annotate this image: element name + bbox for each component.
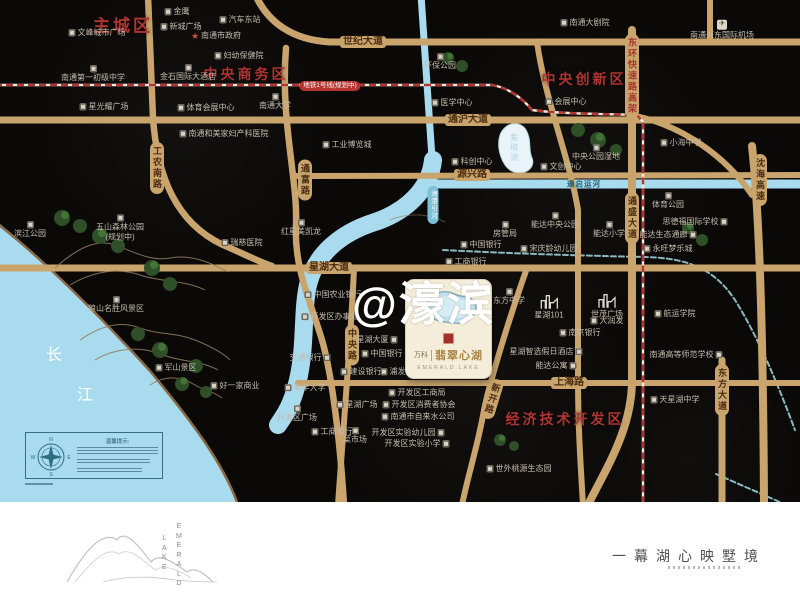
road-label: 星湖大道: [306, 262, 352, 274]
poi-label: 开发区实验小学: [385, 439, 450, 449]
compass-n: N: [49, 437, 53, 443]
disclaimer-paragraph: [77, 468, 142, 474]
poi-text: 体育会展中心: [187, 103, 235, 113]
district-label: 中央创新区: [542, 69, 627, 89]
poi-text: 航运学院: [664, 309, 696, 319]
real-estate-location-map-poster: 主城区中央商务区中央创新区经济技术开发区世纪大道通沪大道源兴路星湖大道上海路工农…: [0, 0, 800, 600]
watermark-text: @濠滨: [352, 268, 495, 334]
poi-label: 狼山名胜风景区: [88, 296, 144, 314]
poi-text: 天星湖中学: [660, 395, 700, 405]
road-label: 世纪大道: [340, 36, 386, 48]
poi-label: 文峰城市广场: [69, 28, 126, 38]
map-area: 主城区中央商务区中央创新区经济技术开发区世纪大道通沪大道源兴路星湖大道上海路工农…: [0, 0, 800, 502]
box-icon: [352, 427, 359, 434]
poi-text: 南通和美家妇产科医院: [189, 129, 269, 139]
poi-text: 南京银行: [569, 328, 601, 338]
footer-tagline: 一幕湖心映墅境: [612, 546, 766, 566]
road-label: 通富路: [298, 160, 312, 201]
poi-text: 体育公园: [652, 200, 684, 210]
box-icon: [294, 405, 301, 412]
poi-text: 南通市自来水公司: [391, 412, 455, 422]
poi-text: 能达生态通廊: [640, 230, 688, 240]
poi-label: 中央公园湿地: [572, 144, 620, 162]
box-icon: [220, 17, 227, 24]
project-name-cn: 翡翠心湖: [435, 347, 483, 363]
poi-label: 五山森林公园 (规划中): [96, 214, 144, 241]
compass-s: S: [49, 472, 53, 477]
poi-label: 星湖大厦: [357, 335, 398, 345]
brand-cn: 万科: [414, 350, 428, 360]
poi-label: 环保公园: [424, 53, 456, 71]
poi-text: 医学中心: [441, 98, 473, 108]
box-icon: [443, 441, 450, 448]
box-icon: [661, 140, 668, 147]
box-icon: [381, 369, 388, 376]
box-icon: [591, 318, 598, 325]
compass-w: W: [31, 455, 36, 461]
road-label: 东环快速路高架: [625, 34, 639, 119]
poi-label: 能达中央公园: [531, 212, 579, 230]
poi-text: 南通大学: [259, 101, 291, 111]
poi-label: 工商银行: [312, 427, 353, 437]
road-label: 紫琅湖: [509, 133, 520, 163]
poi-label: 房管局: [493, 221, 517, 239]
poi-text: 金鹰: [174, 7, 190, 17]
box-icon: [452, 159, 459, 166]
brand-lockup: 万科 翡翠心湖: [414, 347, 483, 363]
poi-text: 瑞慈医院: [231, 238, 263, 248]
poi-label: 小海中学: [661, 138, 702, 148]
poi-label: 南通市自来水公司: [382, 412, 455, 422]
road-label: 海港引河: [428, 186, 439, 224]
poi-text: 老年大学: [294, 383, 326, 393]
box-icon: [323, 142, 330, 149]
poi-text: 星湖101: [534, 311, 563, 321]
road-label: 新开路: [479, 377, 504, 420]
disclaimer-title: 温馨提示:: [77, 437, 158, 445]
box-icon: [341, 369, 348, 376]
poi-text: 小海中学: [670, 138, 702, 148]
poi-label: 工商银行: [446, 257, 487, 267]
box-icon: [437, 53, 444, 60]
box-icon: [80, 104, 87, 111]
footer: EMERALD LAKE 一幕湖心映墅境: [0, 502, 800, 600]
poi-label: ★南通市政府: [191, 31, 241, 41]
box-icon: [305, 292, 312, 299]
box-icon: [185, 64, 192, 71]
poi-text: 开发区消费者协会: [392, 400, 456, 410]
poi-text: 南通大剧院: [570, 18, 610, 28]
poi-text: 开发区实验幼儿园: [372, 428, 436, 438]
poi-label: 星湖101: [534, 294, 563, 321]
district-label: 经济技术开发区: [506, 409, 625, 429]
brand-divider: [431, 350, 432, 361]
poi-text: 科创中心: [461, 157, 493, 167]
poi-text: 思德福国际学校: [663, 217, 719, 227]
box-icon: [389, 390, 396, 397]
disclaimer-paragraph: [77, 459, 150, 465]
box-icon: [721, 219, 728, 226]
box-icon: [432, 100, 439, 107]
poi-text: 红星美凯龙: [281, 227, 321, 237]
box-icon: [90, 65, 97, 72]
box-icon: [606, 221, 613, 228]
box-icon: [502, 221, 509, 228]
box-icon: [561, 20, 568, 27]
poi-label: 天星湖中学: [651, 395, 700, 405]
poi-label: 能达公寓: [536, 361, 577, 371]
poi-text: 交通银行: [290, 353, 322, 363]
box-icon: [362, 351, 369, 358]
footer-small-print: [668, 566, 740, 569]
box-icon: [570, 363, 577, 370]
poi-label: 汽车东站: [220, 15, 261, 25]
star-icon: ★: [191, 32, 199, 40]
box-icon: [438, 430, 445, 437]
box-icon: [302, 314, 309, 321]
box-icon: [521, 246, 528, 253]
box-icon: [665, 192, 672, 199]
box-icon: [298, 219, 305, 226]
road-label: 通启运河: [567, 179, 601, 190]
box-icon: [461, 242, 468, 249]
box-icon: [560, 330, 567, 337]
poi-label: 开发区办事处: [302, 312, 359, 322]
poi-text: 工商银行: [321, 427, 353, 437]
box-icon: [161, 24, 168, 31]
poi-text: 金石国际大酒店: [160, 72, 216, 82]
poi-label: 东方中学: [493, 288, 525, 306]
box-icon: [655, 311, 662, 318]
poi-text: 能达中央公园: [531, 220, 579, 230]
poi-label: 中国银行: [461, 240, 502, 250]
box-icon: [690, 232, 697, 239]
poi-label: 星湖广场: [337, 400, 378, 410]
poi-text: 宋庆龄幼儿园: [530, 244, 578, 254]
poi-text: 建设银行: [350, 367, 382, 377]
box-icon: [576, 349, 583, 356]
road-label: 工农南路: [150, 142, 164, 194]
poi-label: 军山景区: [156, 363, 197, 373]
poi-label: 南通高等师范学校: [650, 350, 723, 360]
box-icon: [285, 385, 292, 392]
poi-text: 滨江公园: [14, 229, 46, 239]
poi-text: 工业博览城: [332, 140, 372, 150]
box-icon: [272, 93, 279, 100]
poi-text: 星湖大厦: [357, 335, 389, 345]
map-labels: 主城区中央商务区中央创新区经济技术开发区世纪大道通沪大道源兴路星湖大道上海路工农…: [0, 0, 800, 502]
poi-text: 中国银行: [371, 349, 403, 359]
poi-text: 永旺梦乐城: [653, 244, 693, 254]
disclaimer-box: N E S W 温馨提示:: [25, 432, 163, 479]
poi-label: 金石国际大酒店: [160, 64, 216, 82]
poi-label: 体育会展中心: [178, 103, 235, 113]
poi-text: 好一家商业: [220, 381, 260, 391]
poi-text: 会展中心: [555, 97, 587, 107]
poi-text: 开发区广场: [277, 413, 317, 423]
box-icon: [215, 53, 222, 60]
road-label: 通盛大道: [625, 192, 639, 244]
road-label: 长: [46, 341, 64, 365]
poi-label: 体育公园: [652, 192, 684, 210]
poi-text: 大润发: [600, 316, 624, 326]
poi-text: 妇幼保健院: [224, 51, 264, 61]
district-label: 中央商务区: [204, 64, 289, 84]
box-icon: [391, 337, 398, 344]
box-icon: [552, 212, 559, 219]
poi-label: 中国银行: [362, 349, 403, 359]
poi-text: 星湖广场: [346, 400, 378, 410]
poi-label: 瑞慈医院: [222, 238, 263, 248]
poi-text: 南通高等师范学校: [650, 350, 714, 360]
box-icon: [178, 105, 185, 112]
building-icon: [597, 293, 617, 309]
logo-vertical-emerald: EMERALD: [176, 522, 182, 589]
poi-text: 环保公园: [424, 61, 456, 71]
project-name-en: EMERALD LAKE: [417, 365, 479, 371]
poi-text: 五山森林公园 (规划中): [96, 222, 144, 241]
box-icon: [27, 221, 34, 228]
box-icon: [651, 397, 658, 404]
poi-label: 开发区广场: [277, 405, 317, 423]
box-icon: [312, 429, 319, 436]
box-icon: [506, 288, 513, 295]
box-icon: [117, 214, 124, 221]
box-icon: [383, 402, 390, 409]
poi-label: 妇幼保健院: [215, 51, 264, 61]
road-label: 上海路: [551, 377, 587, 389]
poi-text: 能达小学: [593, 229, 625, 239]
poi-label: ✈南通兴东国际机场: [690, 20, 754, 41]
poi-label: 能达小学: [593, 221, 625, 239]
poi-label: 南京银行: [560, 328, 601, 338]
poi-label: 文创中心: [541, 162, 582, 172]
road-label: 通沪大道: [445, 114, 491, 126]
compass-e: E: [67, 455, 71, 461]
poi-text: 汽车东站: [229, 15, 261, 25]
box-icon: [324, 355, 331, 362]
compass-rose-icon: N E S W: [30, 435, 72, 477]
poi-label: 宋庆龄幼儿园: [521, 244, 578, 254]
box-icon: [337, 402, 344, 409]
box-icon: [211, 383, 218, 390]
poi-text: 工商银行: [455, 257, 487, 267]
poi-label: 星湖智选假日酒店: [510, 347, 583, 357]
box-icon: [69, 30, 76, 37]
poi-label: 科创中心: [452, 157, 493, 167]
road-label: 沈海高速: [753, 154, 767, 206]
poi-label: 开发区实验幼儿园: [372, 428, 445, 438]
box-icon: [644, 246, 651, 253]
building-icon: [539, 294, 559, 310]
poi-label: 医学中心: [432, 98, 473, 108]
poi-label: 南通大学: [259, 93, 291, 111]
poi-text: 南通市政府: [201, 31, 241, 41]
poi-label: 星光耀广场: [80, 102, 129, 112]
box-icon: [546, 99, 553, 106]
road-label: 江: [77, 381, 95, 405]
poi-text: 南通兴东国际机场: [690, 31, 754, 41]
poi-text: 南通第一初级中学: [61, 73, 125, 83]
poi-label: 金鹰: [165, 7, 190, 17]
poi-text: 开发区实验小学: [385, 439, 441, 449]
poi-label: 南通第一初级中学: [61, 65, 125, 83]
poi-text: 中国银行: [470, 240, 502, 250]
poi-label: 工业博览城: [323, 140, 372, 150]
poi-text: 房管局: [493, 229, 517, 239]
poi-label: 开发区消费者协会: [383, 400, 456, 410]
box-icon: [113, 296, 120, 303]
poi-text: 能达公寓: [536, 361, 568, 371]
poi-label: 思德福国际学校: [663, 217, 728, 227]
plane-icon: ✈: [717, 20, 727, 30]
poi-text: 东方中学: [493, 296, 525, 306]
poi-text: 星湖智选假日酒店: [510, 347, 574, 357]
mountain-line-art: [55, 510, 230, 595]
road-label: 地铁1号线(规划中): [299, 81, 360, 91]
poi-label: 南通和美家妇产科医院: [180, 129, 269, 139]
poi-text: 军山景区: [165, 363, 197, 373]
poi-label: 开发区工商局: [389, 388, 446, 398]
poi-label: 红星美凯龙: [281, 219, 321, 237]
box-icon: [716, 352, 723, 359]
box-icon: [446, 259, 453, 266]
box-icon: [222, 240, 229, 247]
poi-label: 航运学院: [655, 309, 696, 319]
poi-label: 永旺梦乐城: [644, 244, 693, 254]
poi-text: 文峰城市广场: [78, 28, 126, 38]
box-icon: [165, 9, 172, 16]
poi-text: 中央公园湿地: [572, 152, 620, 162]
box-icon: [593, 144, 600, 151]
box-icon: [156, 365, 163, 372]
box-icon: [180, 131, 187, 138]
poi-label: 好一家商业: [211, 381, 260, 391]
road-label: 源兴路: [454, 169, 490, 181]
poi-label: 会展中心: [546, 97, 587, 107]
disclaimer-paragraph: [77, 447, 158, 456]
poi-label: 能达生态通廊: [640, 230, 697, 240]
road-label: 东方大道: [715, 364, 729, 416]
poi-text: 狼山名胜风景区: [88, 304, 144, 314]
box-icon: [487, 466, 494, 473]
poi-label: 老年大学: [285, 383, 326, 393]
poi-label: 大润发: [591, 316, 624, 326]
box-icon: [541, 164, 548, 171]
box-icon: [382, 414, 389, 421]
scale-mark: [25, 483, 53, 485]
poi-label: 建设银行: [341, 367, 382, 377]
poi-text: 文创中心: [550, 162, 582, 172]
poi-text: 世外桃源生态园: [496, 464, 552, 474]
poi-text: 开发区工商局: [398, 388, 446, 398]
poi-label: 南通大剧院: [561, 18, 610, 28]
poi-label: 世外桃源生态园: [487, 464, 552, 474]
poi-text: 星光耀广场: [89, 102, 129, 112]
disclaimer-text: 温馨提示:: [77, 437, 158, 474]
logo-vertical-lake: LAKE: [162, 534, 167, 572]
poi-label: 交通银行: [290, 353, 331, 363]
poi-label: 滨江公园: [14, 221, 46, 239]
